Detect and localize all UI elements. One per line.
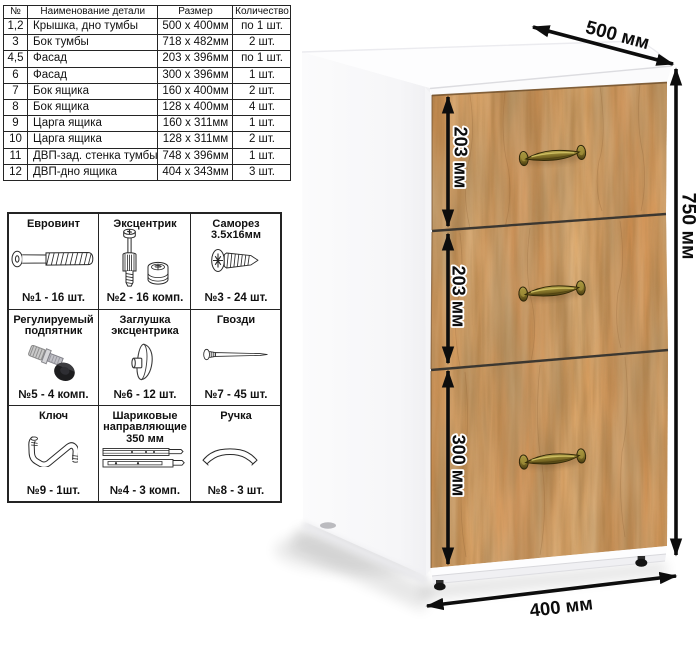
svg-text:203 мм: 203 мм bbox=[451, 127, 471, 189]
svg-text:300 мм: 300 мм bbox=[449, 435, 469, 497]
svg-text:750 мм: 750 мм bbox=[678, 193, 700, 260]
svg-text:400 мм: 400 мм bbox=[528, 592, 593, 620]
svg-text:203 мм: 203 мм bbox=[449, 266, 469, 328]
